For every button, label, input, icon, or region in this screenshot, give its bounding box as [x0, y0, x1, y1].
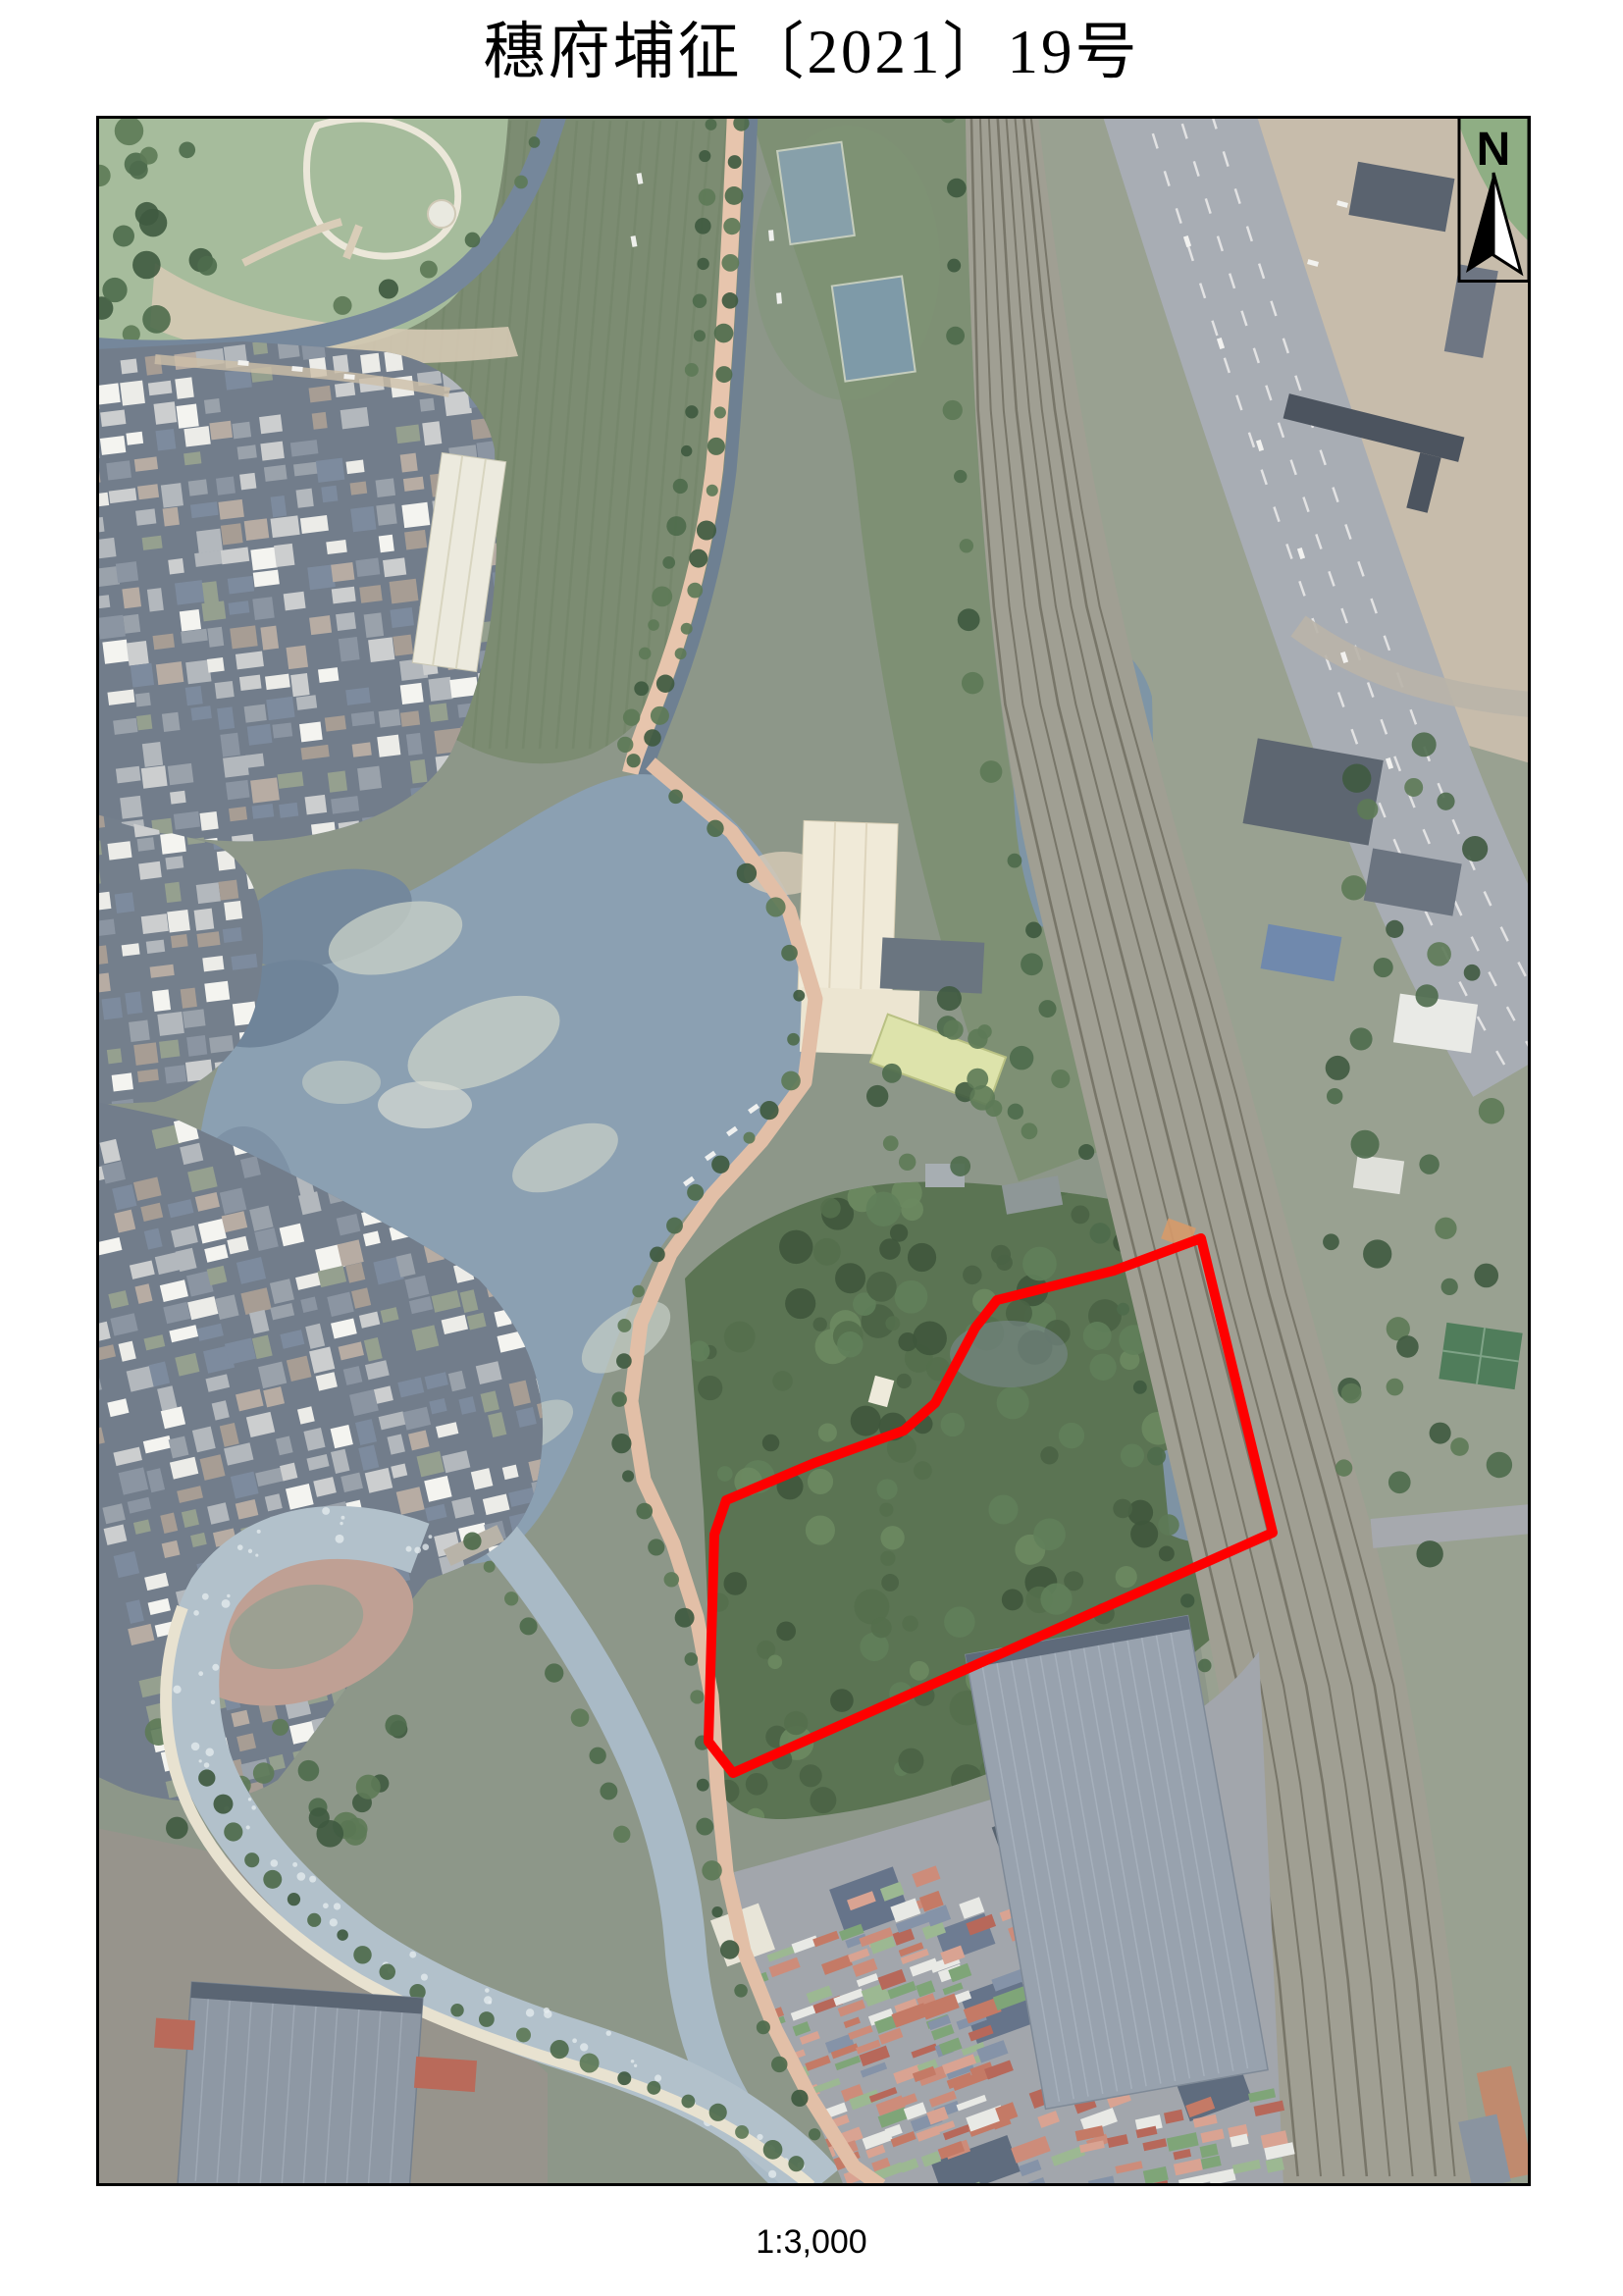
tree [1158, 1514, 1179, 1536]
tree [1341, 1383, 1362, 1404]
water-speckle [251, 1805, 256, 1810]
tree [668, 789, 683, 804]
tree [479, 2011, 495, 2027]
tree [1342, 764, 1371, 793]
tree [1388, 1471, 1411, 1493]
forest-canopy [772, 1371, 793, 1391]
tree [644, 729, 661, 747]
tree [793, 990, 805, 1002]
tree [722, 292, 739, 309]
tree [1078, 1144, 1094, 1160]
water-speckle [757, 2134, 762, 2140]
water-speckle [222, 1599, 231, 1608]
warehouse-small [178, 1982, 423, 2186]
forest-canopy [800, 1764, 822, 1787]
tree [516, 2028, 531, 2043]
tree [379, 279, 398, 298]
tree [142, 305, 171, 334]
water-speckle [768, 2170, 776, 2178]
forest-canopy [1083, 1322, 1112, 1350]
water-speckle [526, 2009, 534, 2016]
tree [699, 150, 710, 162]
tree [1387, 1379, 1404, 1396]
tree [1441, 1278, 1458, 1295]
tree [1133, 1381, 1147, 1394]
forest-canopy [1127, 1500, 1153, 1526]
water-speckle [544, 2008, 550, 2013]
tree [809, 2128, 820, 2140]
tree [757, 2020, 770, 2034]
tree [899, 1154, 916, 1171]
tree [1487, 1452, 1512, 1478]
tree [244, 1852, 259, 1867]
tree [1396, 1335, 1419, 1358]
water-speckle [634, 2064, 637, 2067]
water-speckle [429, 1535, 433, 1539]
forest-canopy [963, 1266, 982, 1285]
tree [766, 897, 786, 916]
water-speckle [323, 1903, 329, 1908]
water-speckle [340, 1522, 342, 1525]
water-speckle [246, 1825, 250, 1829]
water-speckle [211, 1700, 216, 1705]
tree [1427, 942, 1451, 966]
vehicle [291, 366, 302, 372]
tree [711, 1906, 722, 1917]
tree [179, 141, 195, 158]
tree [600, 1782, 617, 1800]
tree [648, 619, 659, 631]
tree [651, 706, 669, 725]
water-speckle [330, 1918, 338, 1926]
tree [866, 1085, 888, 1107]
water-speckle [237, 1544, 243, 1550]
tree [1008, 854, 1022, 868]
tree [943, 1019, 963, 1039]
forest-canopy [784, 1711, 808, 1735]
forest-canopy [1040, 1584, 1072, 1615]
tree [463, 1532, 481, 1549]
tree [947, 259, 961, 273]
tree [1404, 778, 1423, 797]
tree [787, 1033, 800, 1046]
forest-canopy [724, 1572, 748, 1595]
tree [1089, 1223, 1110, 1243]
forest-canopy [808, 1469, 833, 1494]
water-speckle [255, 1553, 258, 1556]
satellite-map: N [96, 116, 1531, 2186]
water-speckle [204, 1762, 210, 1768]
tree [666, 516, 686, 536]
tree [681, 2095, 695, 2109]
tree [272, 1719, 288, 1736]
tree [450, 2004, 463, 2016]
tree [166, 1817, 188, 1840]
forest-canopy [910, 1661, 929, 1681]
tree [675, 648, 687, 659]
tree [690, 1690, 704, 1703]
forest-canopy [810, 1787, 836, 1813]
tree [693, 294, 707, 308]
water-speckle [205, 1748, 213, 1755]
tree [962, 672, 984, 695]
tree [611, 1391, 627, 1407]
water-speckle [606, 2030, 611, 2035]
tree [734, 1984, 748, 1998]
tree [1198, 1659, 1212, 1673]
forest-canopy [1040, 1446, 1058, 1464]
forest-canopy [1130, 1520, 1158, 1547]
tree [298, 1760, 320, 1782]
tree [580, 2054, 600, 2073]
tree [687, 583, 703, 599]
water-speckle [322, 1507, 330, 1515]
water-speckle [191, 1743, 200, 1751]
tree [771, 2057, 787, 2072]
tree [197, 256, 217, 276]
tree [529, 136, 541, 148]
tree [1351, 1130, 1380, 1159]
tree [1363, 1239, 1391, 1268]
water-speckle [202, 1593, 209, 1600]
forest-canopy [837, 1331, 863, 1357]
tree [1416, 984, 1439, 1007]
tree [571, 1708, 590, 1727]
forest-canopy [689, 1340, 709, 1361]
water-speckle [198, 1671, 203, 1676]
tree [714, 406, 726, 418]
tree [694, 330, 706, 341]
tree [706, 119, 717, 130]
tree [634, 681, 649, 696]
tree [744, 1132, 756, 1144]
vehicle [776, 292, 782, 303]
tree [334, 296, 352, 315]
tree [714, 324, 734, 343]
tree [113, 226, 134, 247]
forest-canopy [1071, 1205, 1089, 1224]
tree [1464, 965, 1481, 981]
tree [420, 261, 438, 279]
forest-canopy [1033, 1518, 1066, 1550]
water-speckle [199, 1759, 202, 1762]
tree [307, 1913, 321, 1927]
tree [1117, 1303, 1129, 1316]
tree [781, 945, 798, 962]
forest-canopy [717, 1466, 733, 1482]
forest-canopy [835, 1263, 865, 1293]
forest-canopy [880, 1526, 904, 1549]
tree [353, 1946, 371, 1963]
vehicle [343, 374, 354, 380]
forest-canopy [866, 1192, 901, 1226]
forest-canopy [881, 1574, 899, 1592]
tree [1479, 1098, 1504, 1123]
water-speckle [336, 1535, 344, 1543]
tree [1326, 1056, 1350, 1080]
forest-canopy [779, 1230, 812, 1264]
tree [647, 2081, 660, 2095]
tree [1386, 920, 1403, 938]
scale-label: 1:3,000 [0, 2223, 1623, 2262]
tree [639, 648, 652, 660]
forest-canopy [1059, 1423, 1084, 1448]
forest-canopy [724, 1322, 756, 1353]
tree [707, 438, 725, 455]
tree [550, 2040, 569, 2059]
forest-canopy [1022, 1247, 1057, 1281]
tree [1021, 1122, 1038, 1139]
tree [947, 179, 967, 198]
tree [685, 1652, 699, 1666]
tree [687, 1184, 704, 1201]
tree [702, 1860, 721, 1880]
tree [102, 278, 127, 302]
tree [611, 1434, 631, 1453]
vehicle [237, 360, 248, 366]
tree [309, 1807, 330, 1828]
tree [675, 1608, 695, 1628]
tree [1419, 1154, 1439, 1174]
tree [695, 218, 711, 235]
forest-canopy [813, 1238, 841, 1266]
tree [788, 2156, 804, 2171]
water-speckle [580, 2043, 588, 2051]
forest-canopy [997, 1386, 1029, 1419]
tree [791, 2090, 808, 2107]
tree [617, 737, 633, 753]
water-speckle [248, 1549, 252, 1553]
tree [650, 1247, 665, 1263]
tree [356, 1775, 381, 1800]
forest-canopy [866, 1272, 897, 1302]
forest-canopy [1002, 1589, 1023, 1610]
tree [1430, 1423, 1451, 1444]
forest-canopy [820, 1198, 841, 1219]
forest-canopy [895, 1280, 928, 1314]
tree [697, 258, 708, 270]
water-speckle [422, 1543, 429, 1550]
forest-canopy [762, 1435, 779, 1451]
tree [1435, 1218, 1456, 1239]
tree [132, 251, 161, 280]
water-speckle [212, 1664, 219, 1671]
forest-canopy [879, 1503, 893, 1517]
forest-canopy [813, 1318, 827, 1331]
page-root: 穗府埔征〔2021〕19号 [0, 0, 1623, 2296]
forest-canopy [914, 1461, 932, 1480]
water-speckle [270, 1859, 278, 1867]
tree [617, 1319, 631, 1332]
tree [1474, 1264, 1498, 1288]
forest-canopy [991, 1245, 1011, 1265]
tree [337, 1929, 347, 1940]
tree [213, 1795, 233, 1814]
forest-canopy [768, 1654, 783, 1669]
tree [514, 176, 528, 189]
tree [253, 1762, 275, 1784]
tree [652, 586, 672, 606]
tree [946, 327, 965, 345]
tree [1323, 1233, 1339, 1250]
forest-canopy [941, 1413, 965, 1436]
forest-canopy [851, 1406, 881, 1436]
tree [115, 117, 143, 145]
water-speckle [334, 1903, 340, 1909]
tree [960, 539, 973, 552]
tree [288, 1893, 300, 1905]
vehicle [768, 230, 774, 240]
tree [1038, 1000, 1056, 1018]
tree [656, 675, 674, 693]
tree [709, 2104, 727, 2121]
forest-canopy [898, 1748, 923, 1774]
tree [1180, 1593, 1194, 1607]
tree [685, 405, 698, 418]
forest-canopy [880, 1550, 895, 1565]
water-speckle [654, 2074, 661, 2081]
forest-canopy [698, 1376, 722, 1400]
tree [707, 485, 718, 496]
tree [1437, 793, 1454, 810]
forest-canopy [806, 1516, 835, 1545]
water-speckle [248, 1798, 251, 1800]
tree [627, 754, 641, 767]
tree [1010, 1046, 1033, 1070]
tree [728, 155, 742, 169]
tree [763, 2140, 783, 2160]
tree [617, 2071, 631, 2085]
tree [224, 1822, 242, 1841]
tree [139, 209, 167, 236]
tree [950, 1156, 970, 1176]
forest-canopy [988, 1494, 1018, 1524]
tree [379, 1963, 395, 1980]
tree [465, 233, 481, 248]
tree [1462, 836, 1488, 861]
tree [689, 549, 707, 568]
tree [623, 709, 640, 726]
forest-canopy [830, 1689, 854, 1712]
tree [520, 1617, 538, 1635]
tree [385, 1715, 406, 1737]
tree [632, 1285, 645, 1298]
tree [721, 254, 739, 272]
tree [937, 986, 962, 1011]
water-speckle [173, 1686, 181, 1694]
tree [735, 2125, 749, 2139]
water-speckle [193, 1610, 199, 1616]
tree [662, 556, 675, 569]
water-speckle [257, 1530, 261, 1534]
water-speckle [406, 1546, 412, 1552]
forest-canopy [776, 1622, 796, 1642]
forest-canopy [902, 1616, 917, 1632]
map-figure: N [96, 116, 1531, 2186]
forest-canopy [818, 1424, 837, 1442]
tree [648, 1539, 664, 1555]
tree [697, 1779, 709, 1792]
tree [198, 1769, 215, 1786]
water-speckle [421, 1973, 428, 1980]
water-speckle [409, 1952, 416, 1958]
tree [723, 218, 740, 235]
water-speckle [292, 1862, 297, 1867]
forest-canopy [885, 1316, 900, 1331]
forest-canopy [1116, 1566, 1137, 1588]
tree [699, 188, 715, 205]
tree [1147, 1447, 1166, 1466]
tree [613, 1826, 630, 1843]
forest-canopy [1089, 1354, 1116, 1381]
tree [681, 445, 692, 456]
tree [484, 1561, 496, 1573]
tree [737, 863, 757, 883]
tree [1416, 1540, 1442, 1567]
forest-canopy [944, 1606, 975, 1638]
tree [622, 1470, 634, 1482]
water-speckle [227, 1594, 230, 1597]
tree [1374, 958, 1393, 977]
water-speckle [341, 1516, 345, 1520]
tree [673, 479, 688, 494]
tree [130, 161, 148, 180]
page-title: 穗府埔征〔2021〕19号 [0, 2, 1623, 91]
water-speckle [309, 1876, 316, 1883]
tree [725, 186, 744, 205]
tree [1350, 1027, 1373, 1050]
tree [263, 1870, 282, 1889]
tree [545, 1663, 563, 1682]
tree [882, 1064, 902, 1083]
tree [707, 820, 723, 837]
water-speckle [297, 1872, 306, 1881]
tree [1341, 875, 1366, 900]
tree [616, 1353, 632, 1369]
tree [681, 623, 693, 635]
north-label: N [1477, 124, 1511, 176]
forest-canopy [746, 1773, 768, 1796]
tree [636, 1503, 653, 1520]
forest-canopy [913, 1322, 947, 1356]
tree [1450, 1437, 1469, 1456]
water-speckle [485, 1988, 490, 1993]
forest-canopy [1121, 1443, 1144, 1467]
tree [697, 520, 716, 540]
tree [1051, 1070, 1070, 1088]
forest-canopy [897, 1374, 912, 1388]
tree [590, 1748, 606, 1764]
forest-canopy [785, 1288, 815, 1319]
tree [720, 1940, 739, 1958]
tree [1335, 1459, 1352, 1476]
water-speckle [572, 2038, 577, 2043]
tree [685, 363, 699, 377]
tree [883, 1135, 899, 1151]
tree [977, 1024, 992, 1039]
forest-canopy [890, 1224, 908, 1241]
tree [664, 1572, 679, 1587]
forest-canopy [877, 1479, 898, 1499]
tree [759, 1101, 778, 1120]
tree [1357, 799, 1378, 819]
water-speckle [484, 1996, 492, 2004]
tree [696, 1818, 713, 1836]
tree [1327, 1088, 1342, 1104]
forest-canopy [1159, 1545, 1175, 1561]
tree [715, 366, 732, 383]
forest-canopy [871, 1617, 892, 1638]
